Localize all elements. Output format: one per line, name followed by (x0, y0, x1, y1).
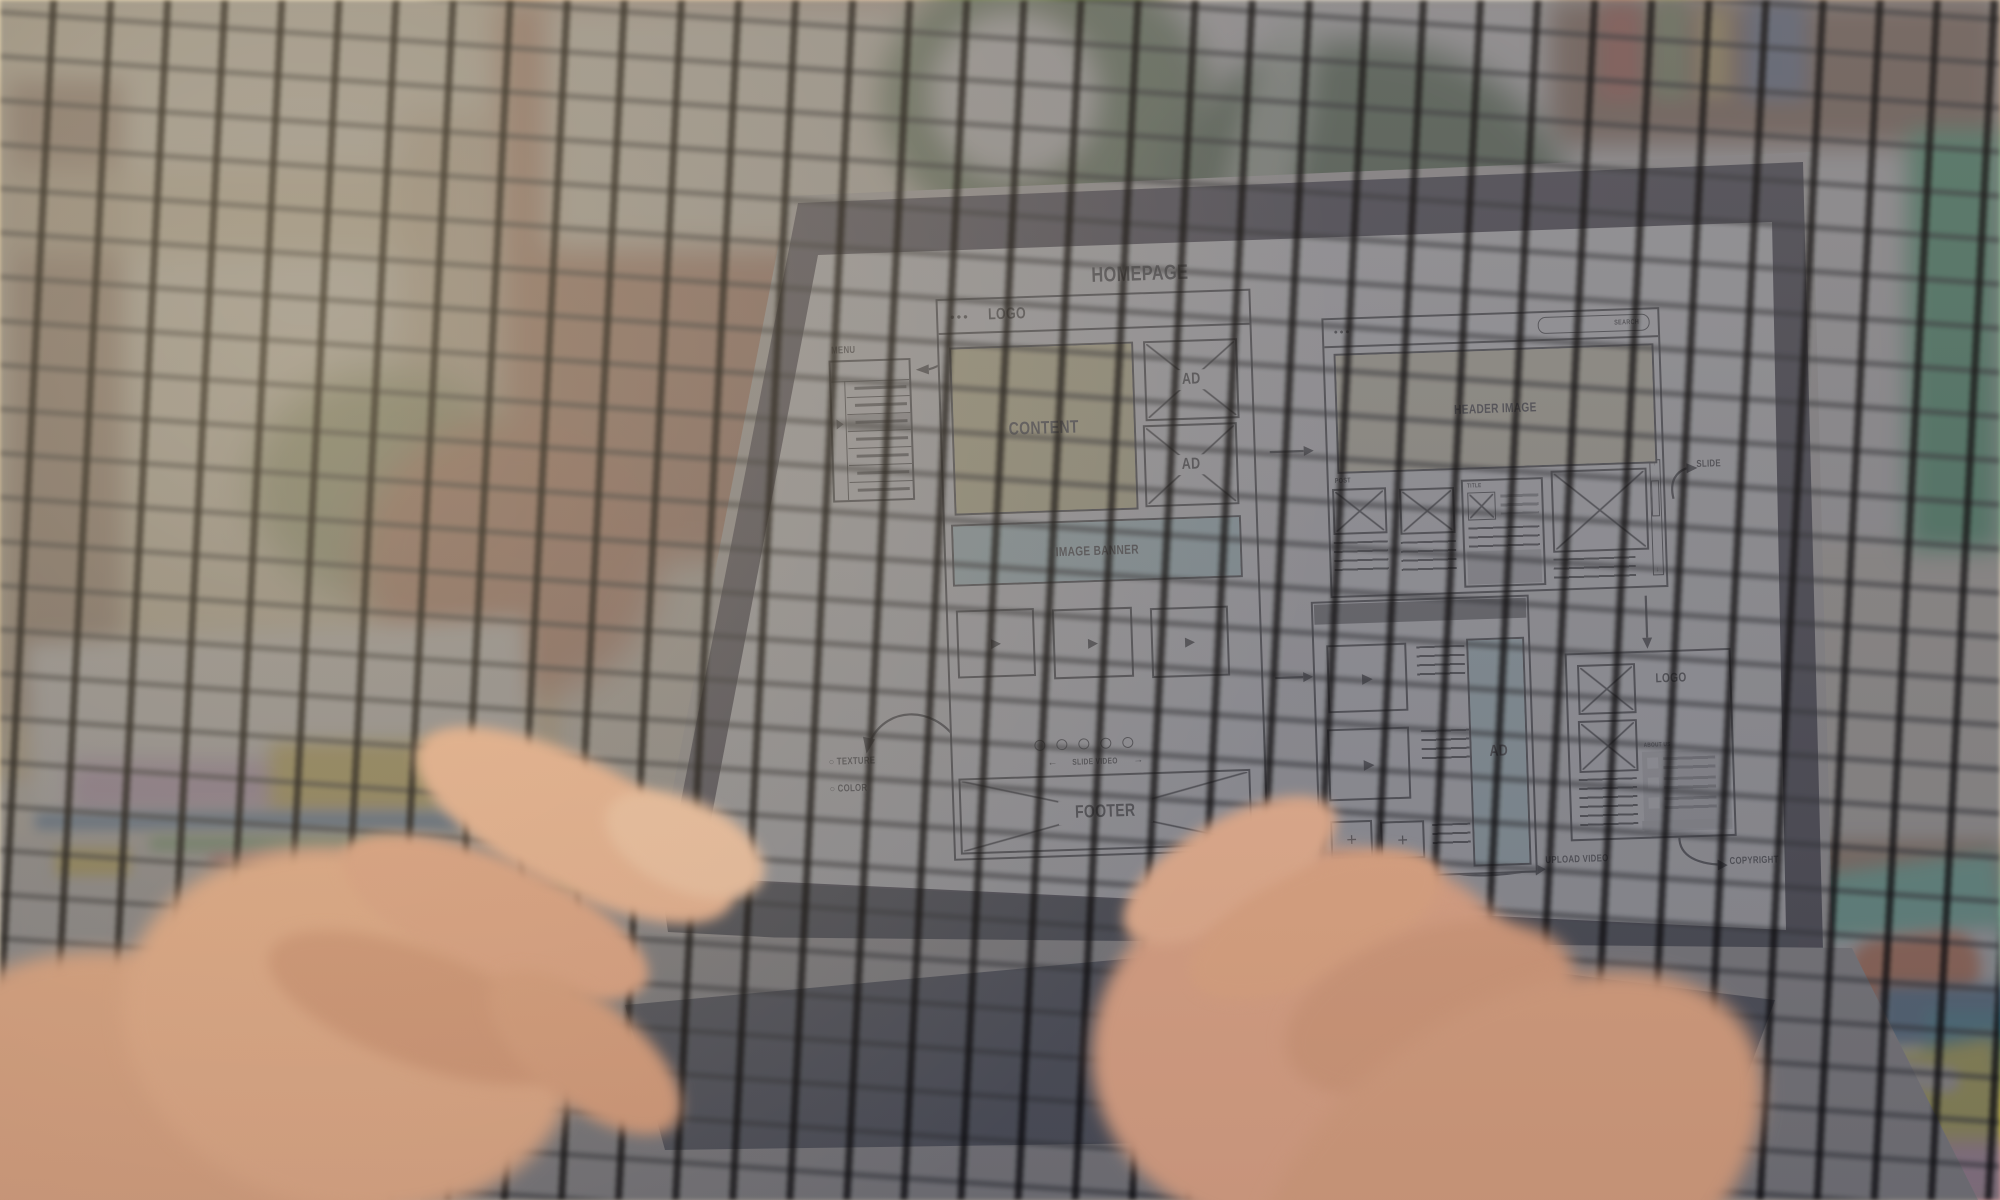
photo-scene: { "wireframe": { "page_title": "HOMEPAGE… (0, 0, 2000, 1200)
